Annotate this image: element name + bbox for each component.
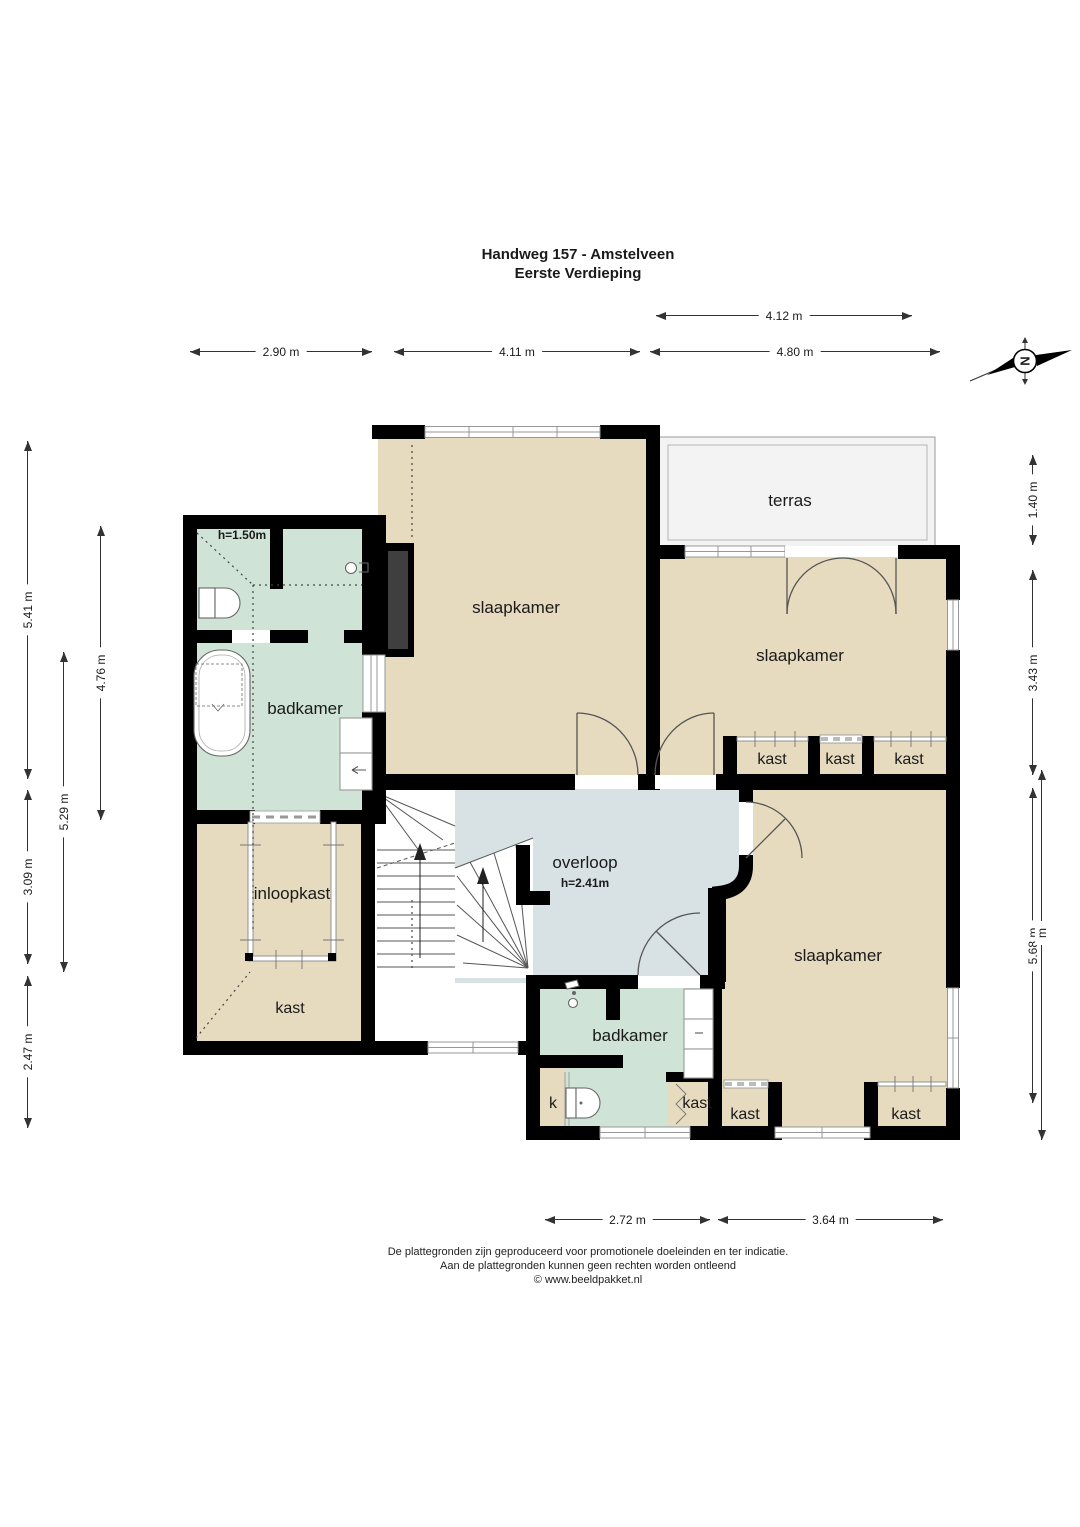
room-label-slaapkamer-bottom: slaapkamer: [794, 946, 882, 965]
inloopkast-rail-left: [248, 822, 253, 960]
window-void-bottom: [428, 1042, 518, 1053]
room-label-kast-top-2: kast: [825, 751, 855, 768]
bathtub: [194, 650, 250, 756]
room-label-kast-badkamer: kast: [682, 1095, 712, 1112]
inloopkast-rail-right: [331, 822, 336, 960]
height-note-badkamer-top: h=1.50m: [218, 528, 266, 542]
dimension-line: 5.68 m: [1032, 788, 1033, 1103]
dimension-line: 2.72 m: [545, 1219, 710, 1220]
room-label-badkamer-top: badkamer: [267, 699, 343, 718]
toilet-top: [199, 588, 240, 618]
dimension-label: 3.64 m: [805, 1213, 856, 1227]
footer-line-1: De plattegronden zijn geproduceerd voor …: [188, 1245, 988, 1259]
compass-north-icon: N: [970, 337, 1072, 385]
dimension-label: 3.43 m: [1026, 647, 1040, 698]
kast-rail: [737, 737, 808, 741]
room-label-kast-bottom-right: kast: [891, 1106, 921, 1123]
compass-letter: N: [1018, 356, 1033, 365]
room-label-terras: terras: [768, 491, 811, 510]
toilet-bottom: [566, 1088, 600, 1118]
dimension-label: 2.47 m: [21, 1027, 35, 1078]
dimension-label: 5.29 m: [57, 787, 71, 838]
interior-window-badkamer: [363, 655, 385, 712]
dimension-line: 4.12 m: [656, 315, 912, 316]
dimension-label: 4.76 m: [94, 648, 108, 699]
room-label-kast-top-1: kast: [757, 751, 787, 768]
folding-door-inloopkast: [250, 811, 320, 823]
dimension-line-secondary: m: [1041, 770, 1042, 1140]
window-slaapkamer-right: [948, 600, 959, 650]
dimension-line: 1.40 m: [1032, 455, 1033, 545]
dimension-label: 5.41 m: [21, 585, 35, 636]
height-note-overloop: h=2.41m: [561, 876, 609, 890]
dimension-label: m: [1035, 921, 1049, 945]
dimension-line: 5.29 m: [63, 652, 64, 972]
dimension-label: 2.72 m: [602, 1213, 653, 1227]
dimension-label: 1.40 m: [1026, 475, 1040, 526]
floor-plan-svg: slaapkamer slaapkamer slaapkamer badkame…: [0, 0, 1080, 1527]
dimension-line: 2.90 m: [190, 351, 372, 352]
folding-door-kast-top: [820, 735, 862, 743]
footer-copyright: © www.beeldpakket.nl: [188, 1273, 988, 1287]
dimension-line: 4.11 m: [394, 351, 640, 352]
folding-door-kast-bottom-left: [724, 1080, 768, 1088]
floorplan-page: Handweg 157 - Amstelveen Eerste Verdiepi…: [0, 0, 1080, 1527]
footer-disclaimer: De plattegronden zijn geproduceerd voor …: [188, 1245, 988, 1287]
room-label-kast-top-3: kast: [894, 751, 924, 768]
door-gap-terras: [785, 546, 898, 557]
kast-rail: [878, 1082, 946, 1086]
window-slaapkamer-bottom: [775, 1127, 870, 1138]
dimension-line: 3.09 m: [27, 790, 28, 964]
room-label-k-closet: k: [549, 1095, 558, 1112]
room-label-inloopkast: inloopkast: [254, 884, 331, 903]
room-label-badkamer-bottom: badkamer: [592, 1026, 668, 1045]
dimension-line: 3.43 m: [1032, 570, 1033, 775]
dimension-label: 2.90 m: [256, 345, 307, 359]
footer-line-2: Aan de plattegronden kunnen geen rechten…: [188, 1259, 988, 1273]
dimension-label: 3.09 m: [21, 852, 35, 903]
door-gap-slaapkamer-right: [655, 775, 716, 789]
room-label-kast-left: kast: [275, 1000, 305, 1017]
appliance-stack: [684, 989, 713, 1078]
window-slaapkamer-top: [425, 427, 600, 438]
window-badkamer-bottom: [600, 1127, 690, 1138]
inloopkast-rail-bottom: [248, 956, 336, 961]
dimension-line: 2.47 m: [27, 976, 28, 1128]
room-label-slaapkamer-top: slaapkamer: [472, 598, 560, 617]
dimension-line: 4.80 m: [650, 351, 940, 352]
dimension-label: 4.80 m: [770, 345, 821, 359]
dimension-line: 5.41 m: [27, 441, 28, 779]
room-label-slaapkamer-right: slaapkamer: [756, 646, 844, 665]
dimension-label: 4.11 m: [492, 345, 542, 359]
kast-rail: [874, 737, 946, 741]
dimension-line: 4.76 m: [100, 526, 101, 820]
door-gap-slaapkamer-top: [575, 775, 638, 789]
room-fill-slaapkamer-right: [653, 552, 953, 783]
bathroom-cabinet: [340, 718, 372, 790]
dimension-label: 4.12 m: [759, 309, 810, 323]
door-gap-badkamer-bottom: [638, 976, 700, 988]
room-label-kast-bottom-left: kast: [730, 1106, 760, 1123]
window-slaapkamer-bottom-right: [948, 988, 959, 1088]
flue-block: [388, 551, 408, 649]
door-gap-toilet-room: [232, 630, 270, 643]
dimension-line: 3.64 m: [718, 1219, 943, 1220]
room-label-overloop: overloop: [552, 853, 617, 872]
door-gap-slaapkamer-bottom: [739, 802, 753, 855]
window-terras-wall: [685, 546, 785, 557]
